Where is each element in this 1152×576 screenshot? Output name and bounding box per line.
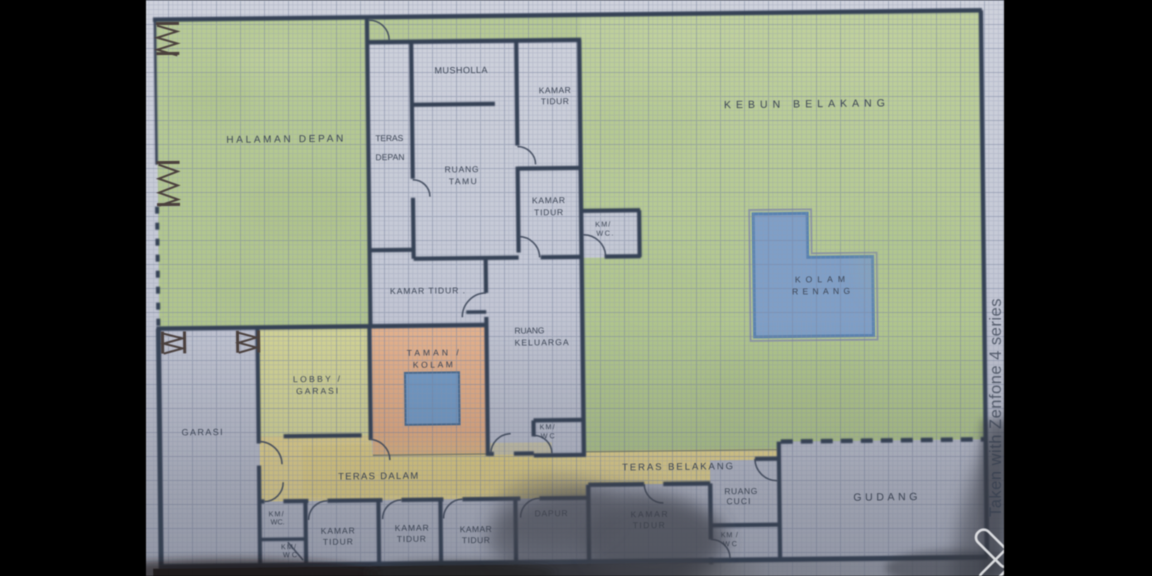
svg-text:Taken with Zenfone 4 series: Taken with Zenfone 4 series (987, 298, 1005, 517)
